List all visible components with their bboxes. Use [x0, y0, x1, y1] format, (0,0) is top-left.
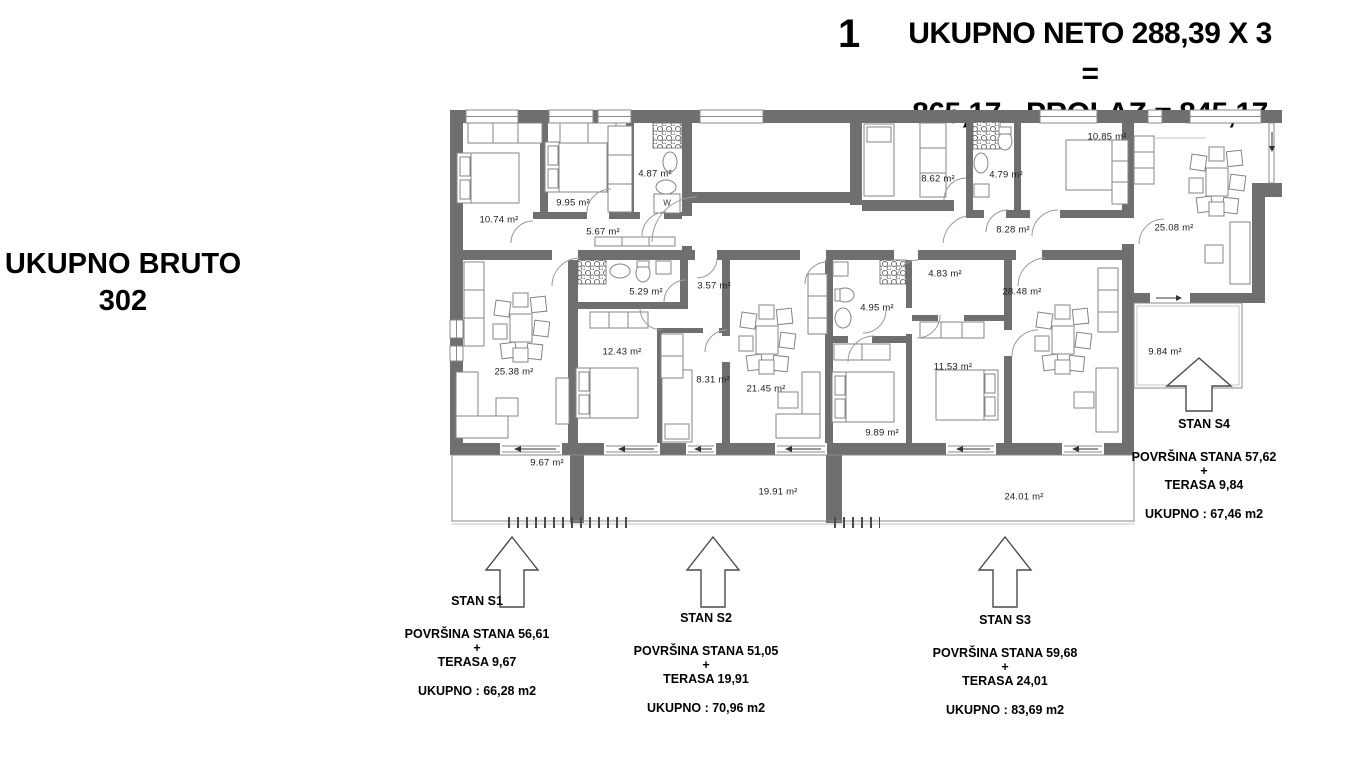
entrance-arrow-s3: [979, 537, 1031, 607]
toilet-icon: [998, 132, 1012, 150]
apartment-name: STAN S3: [899, 613, 1111, 627]
plus-sign: +: [600, 658, 812, 672]
apartment-terrace: TERASA 24,01: [899, 674, 1111, 688]
apartment-area: POVRŠINA STANA 56,61: [371, 627, 583, 641]
sofa-icon: [1230, 222, 1250, 284]
bed-icon: [545, 142, 607, 192]
apartment-info-s1: STAN S1 POVRŠINA STANA 56,61 + TERASA 9,…: [371, 594, 583, 698]
room-area-label: 3.57 m²: [697, 281, 731, 292]
entrance-arrow-s2: [687, 537, 739, 607]
dining-table-icon: [1189, 147, 1246, 216]
coffee-table-icon: [1205, 245, 1223, 263]
sofa-icon: [556, 378, 569, 424]
apartment-info-s4: STAN S4 POVRŠINA STANA 57,62 + TERASA 9,…: [1098, 417, 1310, 521]
apartment-total: UKUPNO : 83,69 m2: [899, 703, 1111, 717]
apartment-terrace: TERASA 9,67: [371, 655, 583, 669]
room-area-label: 5.67 m²: [586, 227, 620, 238]
room-area-label: 9.95 m²: [556, 198, 590, 209]
floor-plan-page: { "header": { "floor_number": "1", "summ…: [0, 0, 1350, 769]
room-area-label: 4.83 m²: [928, 269, 962, 280]
plus-sign: +: [899, 660, 1111, 674]
room-area-label: 9.67 m²: [530, 458, 564, 469]
terrace-railing: [834, 517, 880, 528]
apartment-name: STAN S4: [1098, 417, 1310, 431]
room-area-label: 8.62 m²: [921, 174, 955, 185]
room-area-label: 4.87 m²: [638, 169, 672, 180]
bed-icon: [576, 368, 638, 418]
terrace-arrow-s4: [1167, 358, 1231, 411]
sink-icon: [974, 153, 988, 173]
toilet-icon: [656, 180, 676, 194]
washing-machine-label: W: [663, 199, 671, 208]
apartment-area: POVRŠINA STANA 59,68: [899, 646, 1111, 660]
room-area-label: 5.29 m²: [629, 287, 663, 298]
room-area-label: 9.84 m²: [1148, 347, 1182, 358]
plus-sign: +: [1098, 464, 1310, 478]
apartment-info-s2: STAN S2 POVRŠINA STANA 51,05 + TERASA 19…: [600, 611, 812, 715]
room-area-label: 28.48 m²: [1002, 287, 1041, 298]
apartment-name: STAN S1: [371, 594, 583, 608]
room-area-label: 19.91 m²: [758, 487, 797, 498]
apartment-terrace: TERASA 19,91: [600, 672, 812, 686]
room-area-label: 10.85 m²: [1087, 132, 1126, 143]
shower-icon: [880, 260, 906, 284]
apartment-area: POVRŠINA STANA 51,05: [600, 644, 812, 658]
shower-icon: [973, 122, 1000, 149]
sofa-icon: [776, 414, 820, 438]
apartment-terrace: TERASA 9,84: [1098, 478, 1310, 492]
room-area-label: 8.31 m²: [696, 375, 730, 386]
apartment-total: UKUPNO : 67,46 m2: [1098, 507, 1310, 521]
bed-icon: [662, 370, 692, 442]
shower-icon: [653, 123, 682, 148]
apartment-name: STAN S2: [600, 611, 812, 625]
room-area-label: 9.89 m²: [865, 428, 899, 439]
dining-table-icon: [1035, 305, 1092, 374]
room-area-label: 12.43 m²: [602, 347, 641, 358]
room-area-label: 8.28 m²: [996, 225, 1030, 236]
sofa-icon: [456, 372, 478, 420]
apartment-area: POVRŠINA STANA 57,62: [1098, 450, 1310, 464]
apartment-total: UKUPNO : 66,28 m2: [371, 684, 583, 698]
room-area-label: 24.01 m²: [1004, 492, 1043, 503]
coffee-table-icon: [1074, 392, 1094, 408]
bed-icon: [936, 370, 998, 420]
room-area-label: 25.38 m²: [494, 367, 533, 378]
sofa-icon: [456, 416, 508, 438]
dining-table-icon: [739, 305, 796, 374]
room-area-label: 25.08 m²: [1154, 223, 1193, 234]
room-area-label: 11.53 m²: [934, 362, 972, 373]
sink-icon: [835, 308, 851, 328]
apartment-info-s3: STAN S3 POVRŠINA STANA 59,68 + TERASA 24…: [899, 613, 1111, 717]
shower-icon: [578, 260, 606, 284]
plus-sign: +: [371, 641, 583, 655]
bed-icon: [457, 153, 519, 203]
room-area-label: 10.74 m²: [479, 215, 518, 226]
room-area-label: 4.95 m²: [860, 303, 894, 314]
room-area-label: 4.79 m²: [989, 170, 1023, 181]
bed-icon: [864, 124, 894, 196]
sofa-icon: [802, 372, 820, 416]
terrace-railing: [508, 517, 632, 528]
apartment-total: UKUPNO : 70,96 m2: [600, 701, 812, 715]
coffee-table-icon: [496, 398, 518, 416]
bed-icon: [832, 372, 894, 422]
room-area-label: 21.45 m²: [746, 384, 785, 395]
sink-icon: [610, 264, 630, 278]
dining-table-icon: [493, 293, 550, 362]
